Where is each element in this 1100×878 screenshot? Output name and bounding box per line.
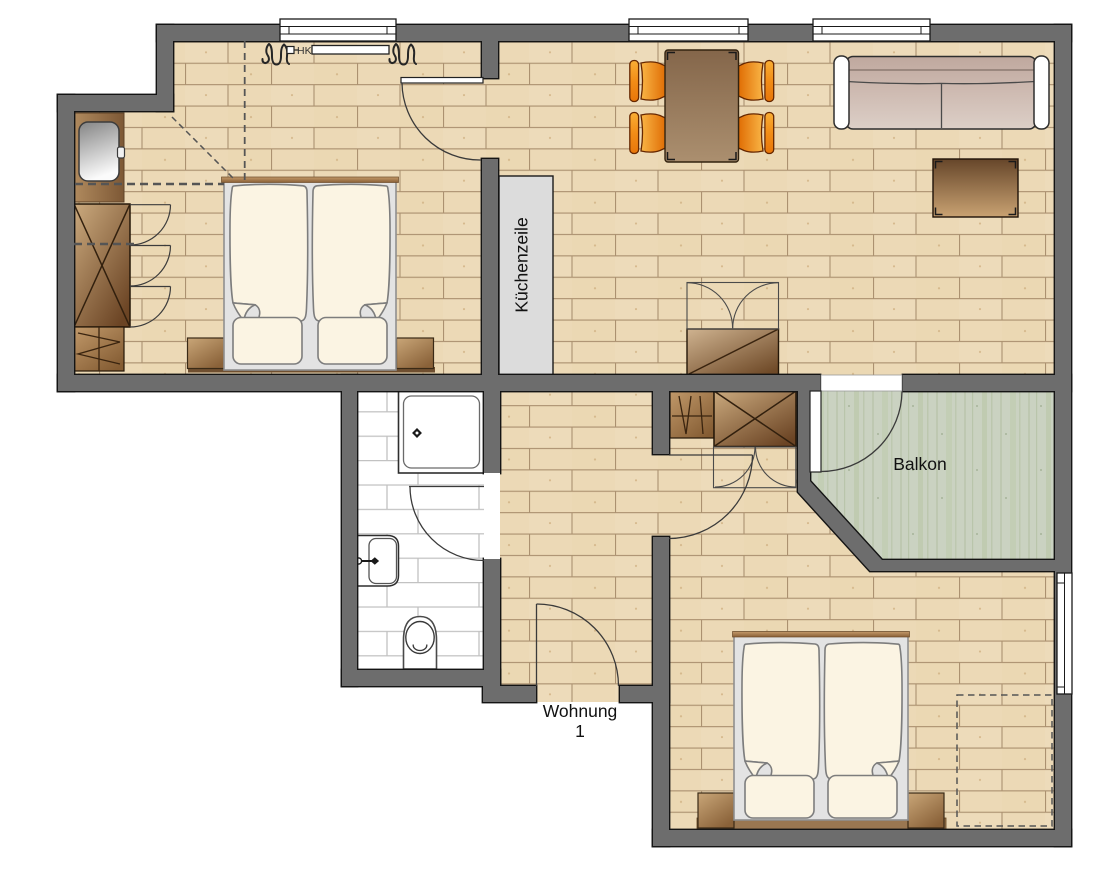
svg-text:Wohnung: Wohnung <box>543 701 618 721</box>
svg-text:1: 1 <box>575 721 585 741</box>
svg-text:Balkon: Balkon <box>893 454 947 474</box>
svg-text:HK: HK <box>297 45 312 57</box>
svg-text:Küchenzeile: Küchenzeile <box>512 217 532 312</box>
